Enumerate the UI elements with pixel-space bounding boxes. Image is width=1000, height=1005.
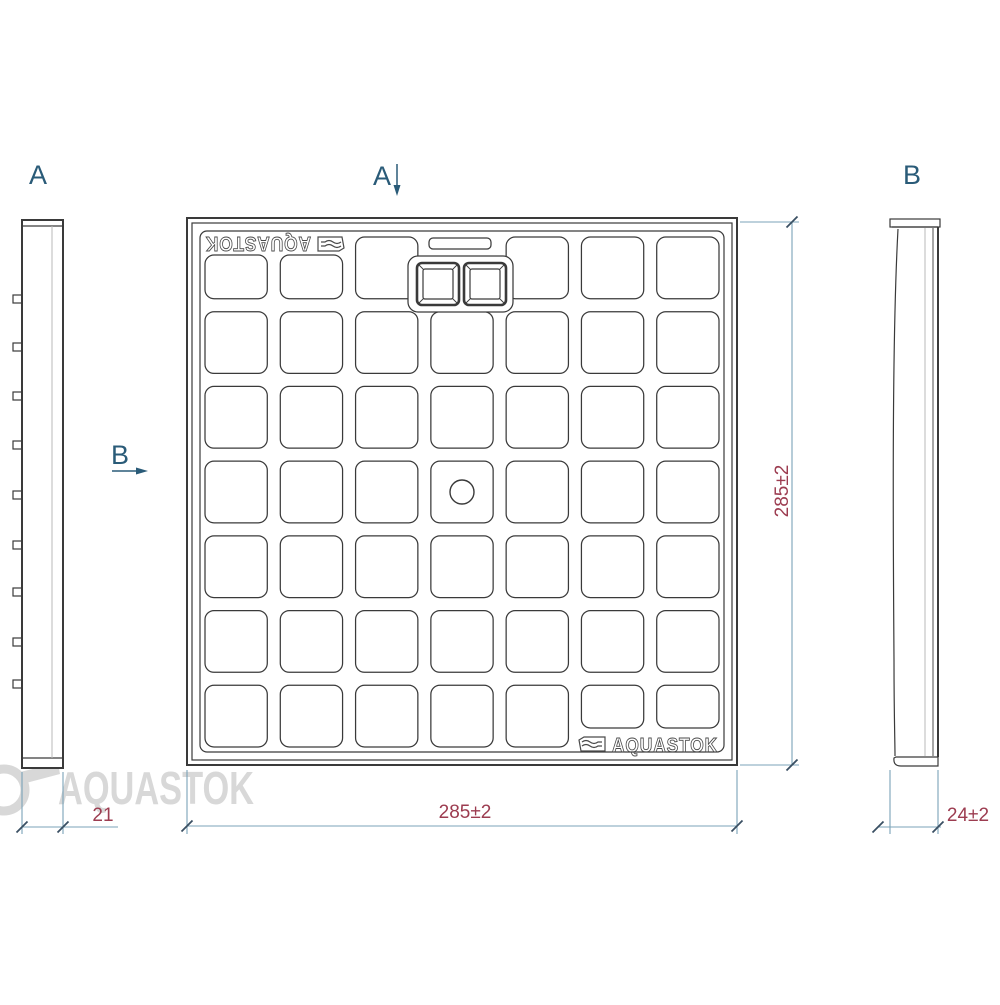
handle-top-slot: [429, 238, 491, 249]
grid-cell: [431, 685, 493, 747]
grid-cell: [506, 461, 568, 523]
dim-text-top-width: 285±2: [439, 802, 492, 823]
grid-cell: [657, 536, 719, 598]
grid-cell: [581, 386, 643, 448]
side-a-tab: [13, 541, 22, 549]
side-a-tab: [13, 343, 22, 351]
side-a-tab: [13, 441, 22, 449]
section-b-letter: B: [111, 440, 129, 470]
technical-drawing: AQUASTOK AQUASTOK: [0, 0, 1000, 1000]
side-a-tabs: [13, 295, 22, 688]
view-top: AQUASTOK AQUASTOK: [187, 218, 737, 765]
grid-cell: [280, 386, 342, 448]
side-b-curved-edge: [893, 229, 898, 756]
grid-cell: [205, 536, 267, 598]
watermark-logo-icon: [0, 769, 25, 811]
grid-cell: [356, 461, 418, 523]
side-b-cap: [890, 219, 940, 227]
watermark: AQUASTOK: [0, 762, 254, 814]
grid-cell: [356, 611, 418, 673]
grid-cell: [356, 685, 418, 747]
grid-cell: [205, 685, 267, 747]
section-b-marker: B: [111, 440, 148, 475]
grid-cell: [581, 312, 643, 374]
grid-cell: [581, 536, 643, 598]
grid-cell: [356, 386, 418, 448]
grid-cell: [280, 611, 342, 673]
side-a-tab: [13, 588, 22, 596]
dim-text-side-b: 24±2: [947, 805, 989, 826]
grid-cell: [280, 536, 342, 598]
view-b-side: [890, 219, 940, 766]
grid-cell: [506, 237, 568, 299]
grid-cell: [506, 312, 568, 374]
grid-cell: [280, 461, 342, 523]
grid-cell: [205, 386, 267, 448]
handle-opening: [417, 263, 459, 305]
side-a-tab: [13, 295, 22, 303]
grid-cell: [356, 536, 418, 598]
right-arrow-icon: [136, 468, 148, 475]
grid-cell: [205, 312, 267, 374]
grid-cell: [657, 386, 719, 448]
grid-cell: [581, 685, 643, 728]
side-a-tab: [13, 638, 22, 646]
grid-cell: [431, 611, 493, 673]
grid-cell: [280, 685, 342, 747]
grid-cell: [280, 312, 342, 374]
drawing-canvas: AQUASTOK AQUASTOK: [0, 0, 1000, 1000]
side-a-tab: [13, 680, 22, 688]
grid-cell: [431, 536, 493, 598]
center-hole: [450, 480, 474, 504]
grid-cell: [657, 461, 719, 523]
grid-cell: [581, 611, 643, 673]
brand-text-bottom: AQUASTOK: [612, 735, 718, 757]
grid-cell: [431, 386, 493, 448]
brand-text-top: AQUASTOK: [205, 232, 311, 254]
grid-cell: [506, 536, 568, 598]
side-a-tab: [13, 392, 22, 400]
view-a-side: [13, 220, 63, 768]
section-a-letter: A: [373, 161, 391, 191]
grid-cell: [280, 255, 342, 299]
grid-cell: [657, 237, 719, 299]
dim-text-top-height: 285±2: [772, 465, 793, 518]
handle-opening: [464, 263, 506, 305]
down-arrow-icon: [394, 185, 401, 196]
section-a-marker: A: [373, 161, 401, 196]
grid-cell: [205, 461, 267, 523]
grid-cell: [657, 611, 719, 673]
grid-cell: [431, 312, 493, 374]
grid-cell: [657, 312, 719, 374]
view-b-label: B: [903, 160, 921, 190]
side-a-body: [22, 220, 63, 768]
grid-cell: [657, 685, 719, 728]
grid-cell: [205, 611, 267, 673]
dim-text-side-a: 21: [92, 805, 113, 826]
watermark-text: AQUASTOK: [58, 762, 254, 814]
grid-cell: [205, 255, 267, 299]
grid-cell: [356, 312, 418, 374]
grid-cell: [581, 237, 643, 299]
side-b-bottom: [894, 757, 938, 766]
view-a-label: A: [29, 160, 47, 190]
grid-cell: [506, 386, 568, 448]
grid-cell: [506, 685, 568, 747]
grid-cell: [506, 611, 568, 673]
grid-cell: [581, 461, 643, 523]
side-a-tab: [13, 491, 22, 499]
